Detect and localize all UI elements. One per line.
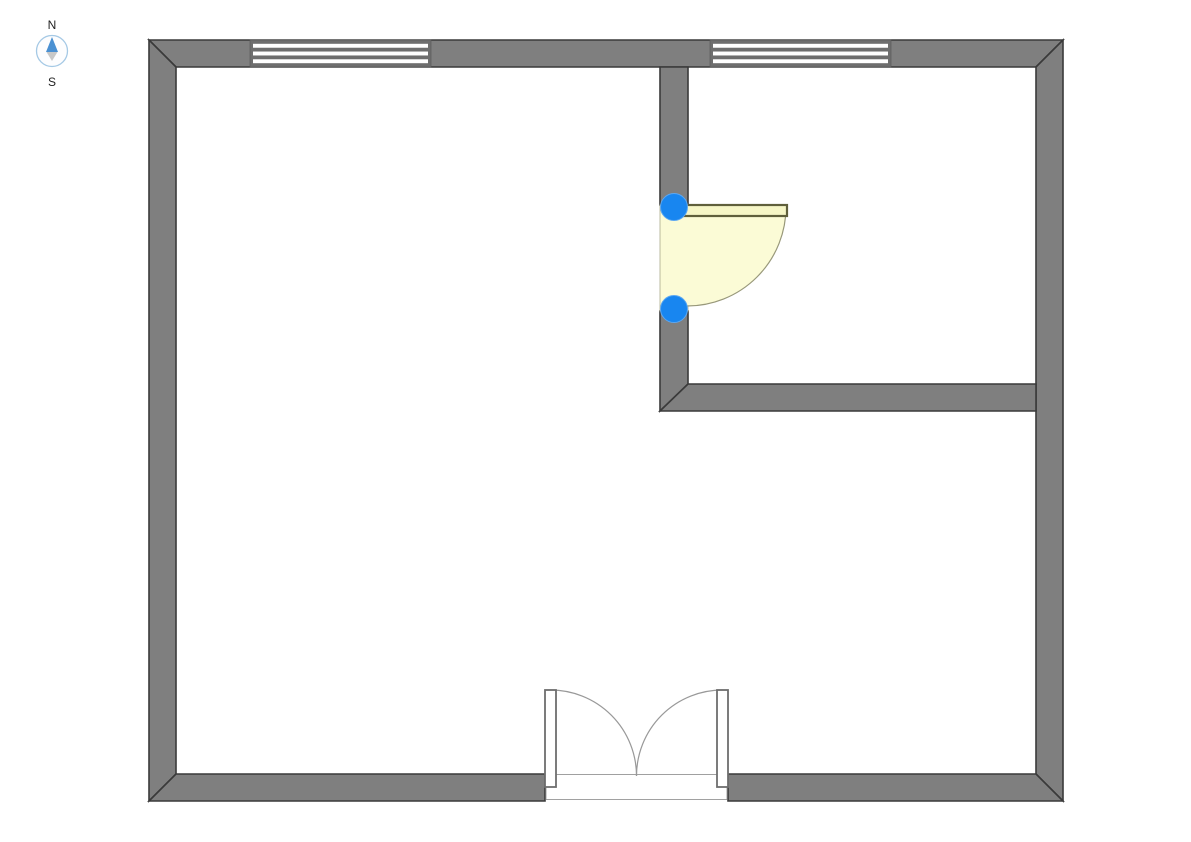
window-north-west-frame-bar: [250, 48, 431, 52]
window-north-west-frame-bar: [250, 63, 431, 67]
window-north-east-frame-bar: [710, 63, 891, 67]
entry-door-right-leaf-panel[interactable]: [717, 690, 728, 787]
window-north-west[interactable]: [250, 40, 431, 67]
window-north-east-frame-bar: [710, 55, 891, 59]
window-north-west-frame-bar: [250, 40, 431, 44]
interior-door-panel[interactable]: [684, 205, 787, 216]
window-north-east[interactable]: [710, 40, 891, 67]
door-handle-start[interactable]: [661, 194, 688, 221]
partition-wall-upper[interactable]: [660, 67, 688, 205]
floorplan-editor-canvas: N S: [0, 0, 1191, 842]
entry-double-door-opening[interactable]: [546, 775, 727, 800]
window-north-east-frame-bar: [710, 48, 891, 52]
outer-wall-bottom-left-segment[interactable]: [149, 774, 545, 801]
floorplan-drawing: [0, 0, 1191, 842]
window-north-west-glass: [250, 40, 431, 67]
window-north-east-frame-bar: [710, 40, 891, 44]
outer-wall-left[interactable]: [149, 40, 176, 801]
interior-door-swing-area[interactable]: [687, 207, 786, 306]
outer-wall-right[interactable]: [1036, 40, 1063, 801]
window-north-west-frame-bar: [250, 55, 431, 59]
window-north-east-frame-right: [888, 40, 891, 67]
entry-double-door[interactable]: [545, 690, 728, 800]
partition-wall-horizontal[interactable]: [660, 384, 1036, 411]
entry-door-left-leaf-swing-arc: [551, 690, 637, 776]
window-north-east-frame-left: [710, 40, 713, 67]
door-handle-end[interactable]: [661, 296, 688, 323]
window-north-west-frame-right: [428, 40, 431, 67]
interior-door[interactable]: [660, 194, 787, 323]
outer-wall-bottom-right-segment[interactable]: [728, 774, 1063, 801]
entry-door-left-leaf-panel[interactable]: [545, 690, 556, 787]
window-north-east-glass: [710, 40, 891, 67]
window-north-west-frame-left: [250, 40, 253, 67]
entry-door-right-leaf-swing-arc: [637, 690, 723, 776]
